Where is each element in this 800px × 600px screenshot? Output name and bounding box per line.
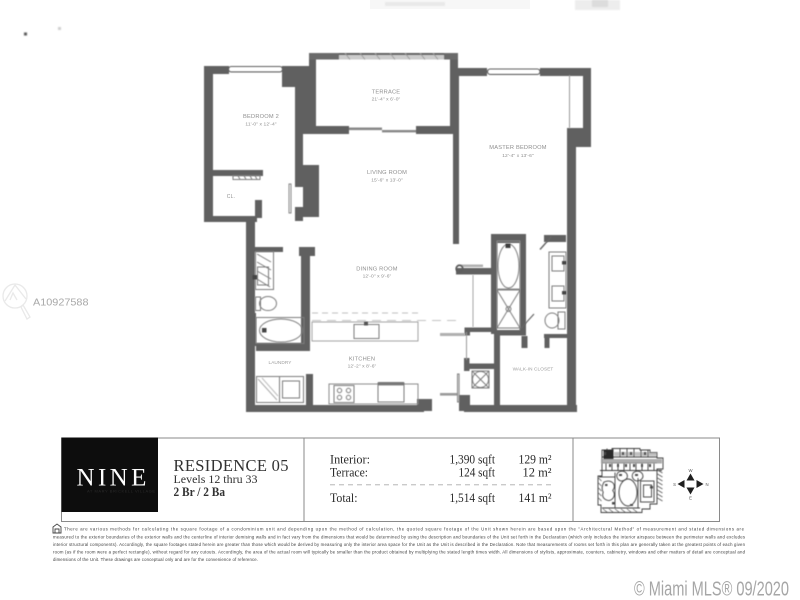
svg-text:measured to the exterior bound: measured to the exterior boundaries of t… [53,535,745,540]
svg-text:N: N [705,482,708,487]
svg-text:11'-0" x 12'-4": 11'-0" x 12'-4" [245,122,276,128]
svg-text:Interior:: Interior: [330,453,370,467]
svg-text:BEDROOM 2: BEDROOM 2 [243,114,279,120]
svg-text:15'-6" x 13'-0": 15'-6" x 13'-0" [371,178,403,184]
svg-text:RESIDENCE 05: RESIDENCE 05 [174,456,289,475]
svg-text:KITCHEN: KITCHEN [349,357,375,363]
svg-text:LAUNDRY: LAUNDRY [268,360,292,365]
svg-text:CL.: CL. [227,194,235,200]
svg-text:DINING ROOM: DINING ROOM [356,267,397,273]
svg-text:E: E [689,496,692,501]
svg-text:21'-4" x 6'-0": 21'-4" x 6'-0" [372,97,401,103]
svg-text:interior structural components: interior structural components). Accordi… [53,542,746,547]
svg-text:S: S [673,482,676,487]
svg-text:12 m²: 12 m² [523,466,552,480]
svg-text:AT MARY BRICKELL VILLAGE: AT MARY BRICKELL VILLAGE [87,489,156,494]
svg-text:LIVING ROOM: LIVING ROOM [367,170,407,176]
svg-text:1,390 sqft: 1,390 sqft [450,453,496,467]
svg-text:A10927588: A10927588 [33,297,89,309]
svg-text:141 m²: 141 m² [519,491,552,505]
svg-text:124 sqft: 124 sqft [459,466,496,480]
svg-text:Terrace:: Terrace: [330,466,368,480]
svg-text:2 Br / 2 Ba: 2 Br / 2 Ba [174,485,226,499]
svg-text:© Miami MLS® 09/2020: © Miami MLS® 09/2020 [634,579,789,600]
svg-text:MASTER BEDROOM: MASTER BEDROOM [489,145,547,151]
svg-text:12'-4" x 13'-6": 12'-4" x 13'-6" [502,153,534,159]
svg-text:W: W [688,468,693,473]
svg-text:12'-2" x 8'-6": 12'-2" x 8'-6" [348,364,377,370]
svg-text:WALK-IN CLOSET: WALK-IN CLOSET [513,367,554,372]
svg-text:Total:: Total: [330,491,358,505]
svg-text:129 m²: 129 m² [519,453,552,467]
svg-text:NINE: NINE [77,465,150,492]
svg-text:12'-0" x 9'-6": 12'-0" x 9'-6" [363,274,392,280]
svg-text:room (as if the room were a pe: room (as if the room were a perfect rect… [53,550,746,555]
svg-text:TERRACE: TERRACE [372,90,401,96]
svg-text:dimensions of the Unit. These: dimensions of the Unit. These drawings a… [53,557,258,562]
svg-text:There are various methods for: There are various methods for calculatin… [64,527,745,532]
svg-text:1,514 sqft: 1,514 sqft [450,491,496,505]
